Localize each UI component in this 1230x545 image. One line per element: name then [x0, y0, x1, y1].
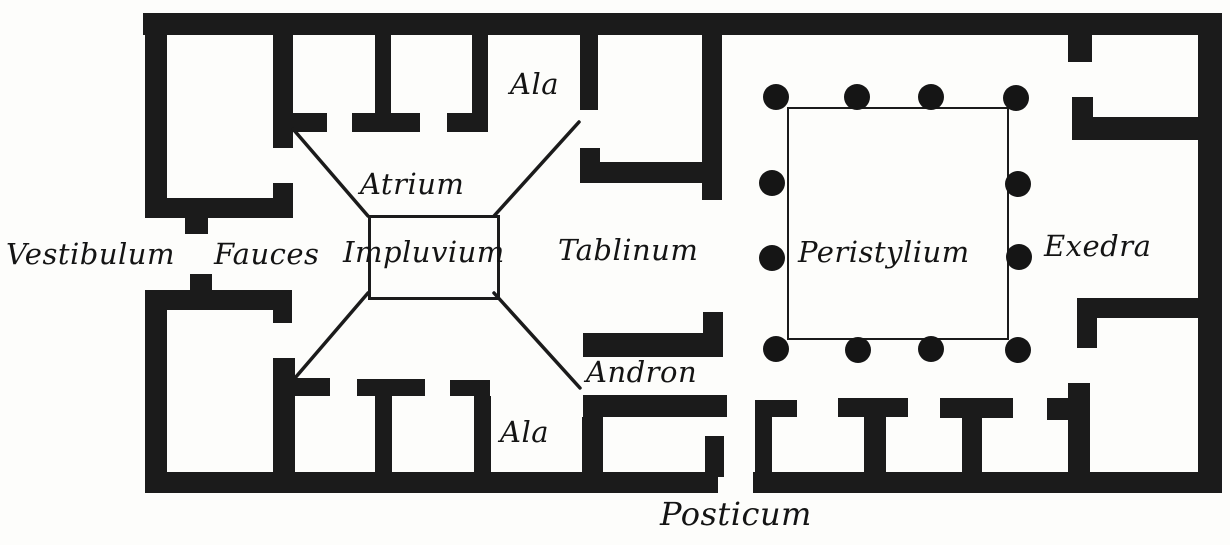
peristyle-court — [787, 107, 1009, 340]
peristyle-column — [845, 337, 871, 363]
roman-house-floor-plan: Vestibulum Fauces Atrium Impluvium Ala A… — [0, 0, 1230, 545]
peristyle-column — [759, 170, 785, 196]
peristyle-column — [1006, 244, 1032, 270]
peristyle-column — [918, 336, 944, 362]
peristyle-column — [763, 84, 789, 110]
label-peristylium: Peristylium — [798, 238, 970, 267]
label-ala-south: Ala — [500, 418, 549, 447]
roofline-se — [494, 293, 580, 388]
compluvium-rooflines — [0, 0, 1230, 545]
peristyle-column — [763, 336, 789, 362]
roofline-ne — [494, 122, 579, 216]
roofline-sw — [295, 293, 368, 378]
peristyle-column — [844, 84, 870, 110]
peristyle-column — [759, 245, 785, 271]
peristyle-column — [1005, 337, 1031, 363]
label-atrium: Atrium — [360, 170, 464, 199]
peristyle-column — [1003, 85, 1029, 111]
peristyle-column — [918, 84, 944, 110]
label-vestibulum: Vestibulum — [6, 240, 175, 269]
label-exedra: Exedra — [1044, 232, 1151, 261]
label-impluvium: Impluvium — [343, 238, 505, 267]
label-posticum: Posticum — [660, 498, 812, 530]
peristyle-column — [1005, 171, 1031, 197]
label-tablinum: Tablinum — [558, 236, 698, 265]
label-andron: Andron — [586, 358, 697, 387]
label-fauces: Fauces — [214, 240, 319, 269]
label-ala-north: Ala — [510, 70, 559, 99]
roofline-nw — [293, 129, 368, 216]
